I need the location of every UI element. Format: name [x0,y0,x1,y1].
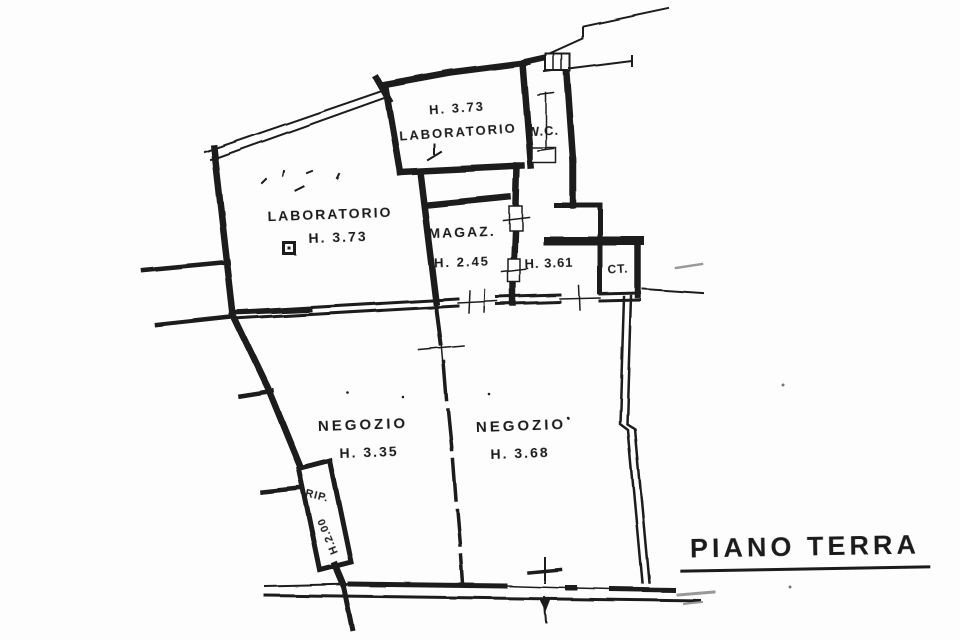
left-wall-stubs [143,262,300,492]
plan-title: PIANO TERRA [680,529,931,572]
room-label-negozio-left-height: H. 3.35 [339,443,399,461]
floor-plan-page: H. 3.73 LABORATORIO W.C. LABORATORIO H. … [0,0,960,640]
room-label-vano361-height: H. 3.61 [524,255,573,272]
room-label-negozio-right-height: H. 3.68 [490,444,550,462]
room-label-ct: CT. [607,261,629,276]
pillar-and-marks [262,144,569,419]
negozio-left-walls [233,315,352,628]
walls-group [143,8,703,628]
room-label-negozio-right-name: NEGOZIO [476,416,567,436]
room-label-magaz-name: MAGAZ. [428,223,496,241]
room-label-negozio-left-name: NEGOZIO [318,415,409,435]
room-label-wc: W.C. [527,123,560,140]
boundary-lines [205,8,703,586]
room-label-lab-left-height: H. 3.73 [308,228,368,246]
wc-walls [532,54,573,163]
negozio-divider-wall [419,306,464,584]
negozio-right-wall [620,296,649,582]
room-label-magaz-height: H. 2.45 [434,254,490,271]
